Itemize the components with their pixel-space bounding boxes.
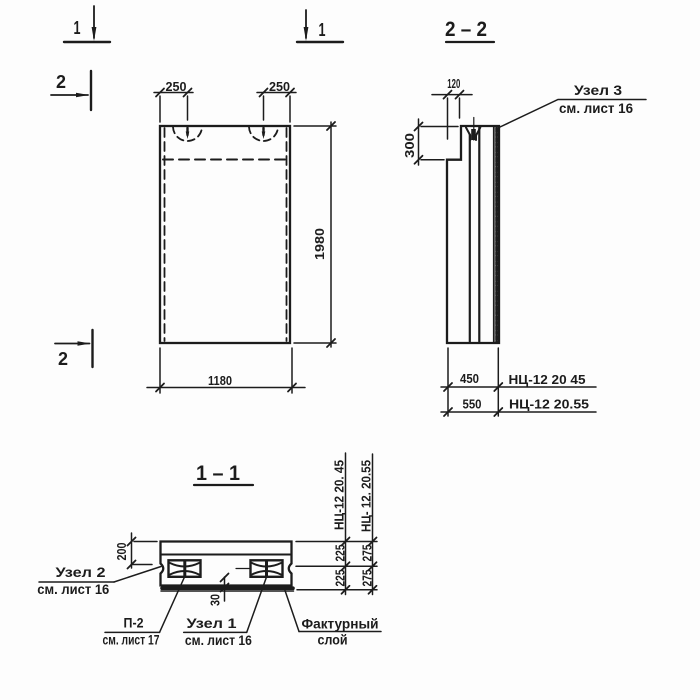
svg-text:2 – 2: 2 – 2	[445, 18, 487, 41]
svg-text:1 – 1: 1 – 1	[196, 462, 240, 485]
svg-text:см. лист 16: см. лист 16	[559, 100, 633, 116]
svg-text:НЦ-12 20 45: НЦ-12 20 45	[509, 372, 586, 387]
svg-text:300: 300	[402, 133, 417, 158]
svg-text:120: 120	[447, 76, 460, 91]
svg-text:см. лист 16: см. лист 16	[185, 632, 252, 648]
svg-text:Фактурный: Фактурный	[302, 616, 379, 632]
svg-text:1: 1	[319, 20, 326, 40]
svg-text:Узел 2: Узел 2	[56, 564, 106, 580]
svg-text:см. лист 16: см. лист 16	[37, 581, 109, 597]
svg-text:НЦ- 12. 20.55: НЦ- 12. 20.55	[359, 460, 374, 532]
svg-text:30: 30	[208, 594, 223, 606]
svg-text:2: 2	[58, 349, 68, 369]
svg-text:250: 250	[166, 79, 187, 94]
svg-text:225: 225	[333, 570, 348, 587]
svg-text:Узел 3: Узел 3	[574, 82, 622, 98]
svg-text:550: 550	[463, 397, 482, 412]
svg-text:1180: 1180	[208, 373, 232, 388]
svg-text:275: 275	[360, 545, 375, 562]
svg-text:Узел 1: Узел 1	[187, 615, 237, 631]
svg-text:275: 275	[360, 570, 375, 587]
svg-text:450: 450	[460, 371, 479, 386]
svg-text:НЦ-12 20.55: НЦ-12 20.55	[509, 397, 589, 412]
svg-text:250: 250	[269, 79, 290, 94]
svg-text:225: 225	[333, 545, 348, 562]
svg-text:2: 2	[56, 72, 66, 92]
svg-text:слой: слой	[318, 632, 348, 648]
svg-text:200: 200	[114, 543, 129, 561]
svg-text:см. лист 17: см. лист 17	[103, 631, 160, 647]
svg-text:1980: 1980	[312, 228, 327, 260]
svg-text:1: 1	[74, 18, 81, 38]
svg-text:П-2: П-2	[124, 615, 144, 631]
svg-text:НЦ-12 20. 45: НЦ-12 20. 45	[332, 460, 347, 530]
